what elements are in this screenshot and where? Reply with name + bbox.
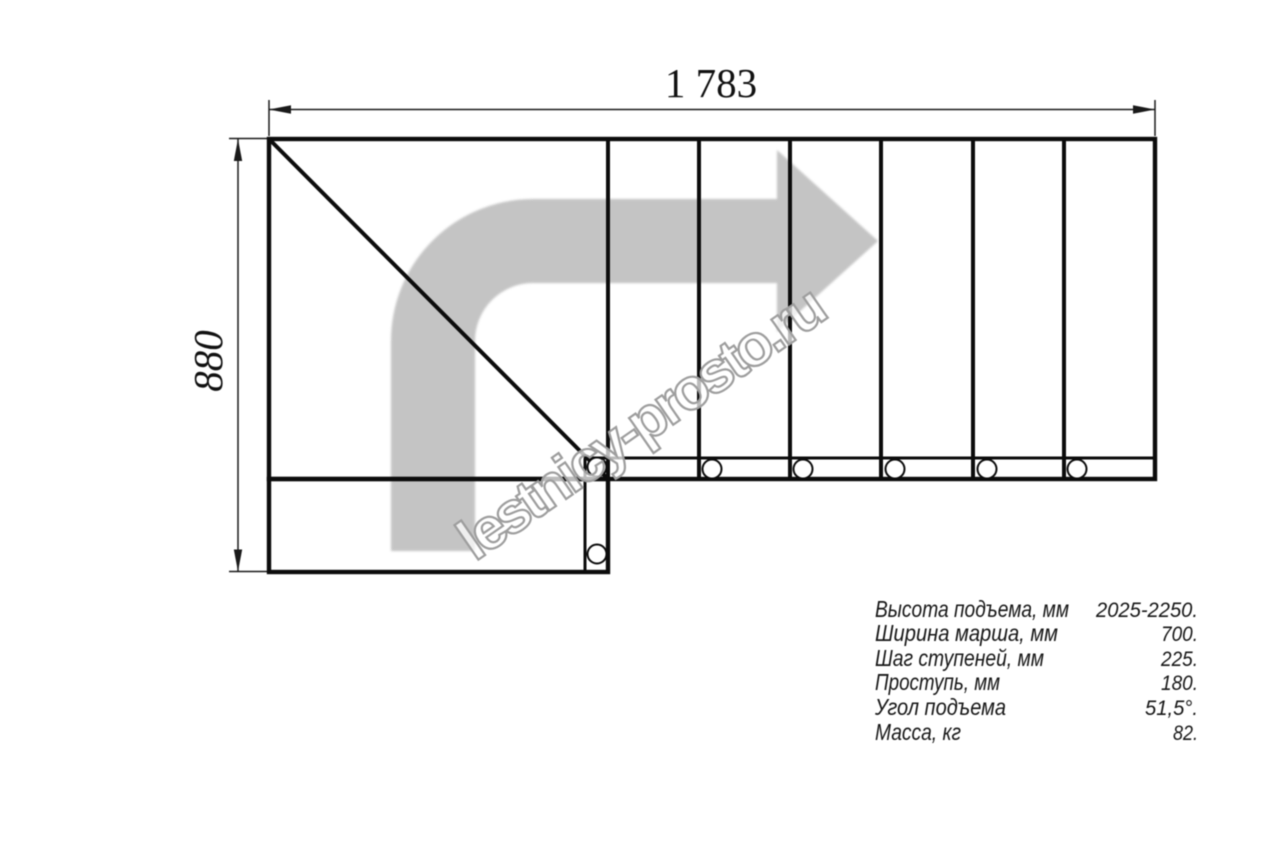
svg-text:2025-2250.: 2025-2250. [1095,598,1198,622]
svg-text:Высота подъема, мм: Высота подъема, мм [875,596,1069,622]
svg-text:Масса, кг: Масса, кг [875,719,961,745]
svg-text:lestnicy-prosto.ru: lestnicy-prosto.ru [445,275,835,573]
svg-text:180.: 180. [1161,671,1198,695]
svg-text:225.: 225. [1160,647,1198,671]
svg-text:51,5°.: 51,5°. [1145,696,1198,720]
svg-text:1 783: 1 783 [665,60,757,106]
svg-text:82.: 82. [1173,721,1198,745]
svg-text:880: 880 [185,330,231,392]
svg-text:Шаг ступеней, мм: Шаг ступеней, мм [875,645,1044,671]
svg-text:Ширина марша, мм: Ширина марша, мм [875,620,1058,646]
svg-text:Угол подъема: Угол подъема [874,694,1006,720]
svg-text:Проступь, мм: Проступь, мм [875,669,1000,695]
svg-text:700.: 700. [1161,622,1198,646]
